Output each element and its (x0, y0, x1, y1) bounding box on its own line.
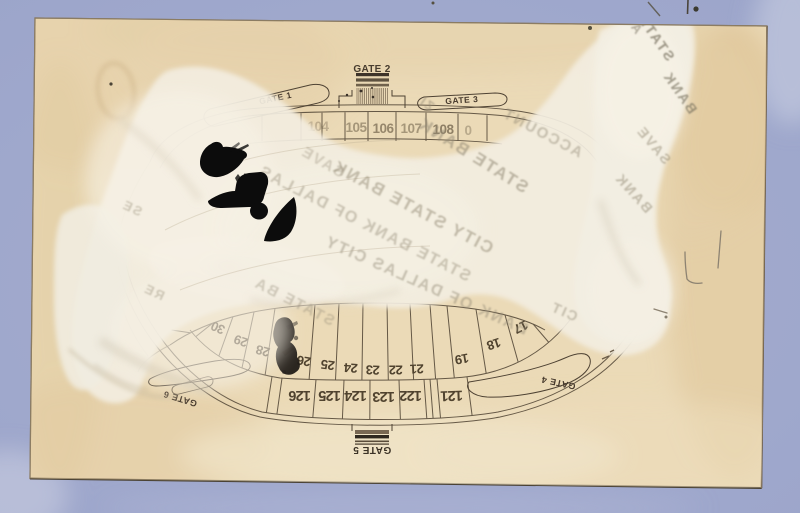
svg-text:23: 23 (366, 362, 380, 377)
svg-text:GATE 2: GATE 2 (353, 64, 390, 75)
svg-text:21: 21 (410, 361, 424, 376)
svg-text:121: 121 (440, 387, 463, 404)
svg-text:125: 125 (318, 387, 341, 403)
svg-text:22: 22 (389, 363, 403, 378)
svg-text:19: 19 (454, 350, 470, 367)
svg-text:123: 123 (372, 388, 395, 404)
svg-text:GATE 5: GATE 5 (353, 444, 391, 455)
svg-text:24: 24 (343, 360, 359, 376)
svg-text:0: 0 (464, 123, 471, 138)
svg-text:25: 25 (320, 357, 335, 374)
svg-text:126: 126 (288, 387, 311, 403)
svg-text:122: 122 (399, 387, 422, 403)
svg-text:106: 106 (372, 121, 394, 136)
svg-text:124: 124 (344, 387, 367, 403)
svg-text:105: 105 (345, 120, 367, 135)
